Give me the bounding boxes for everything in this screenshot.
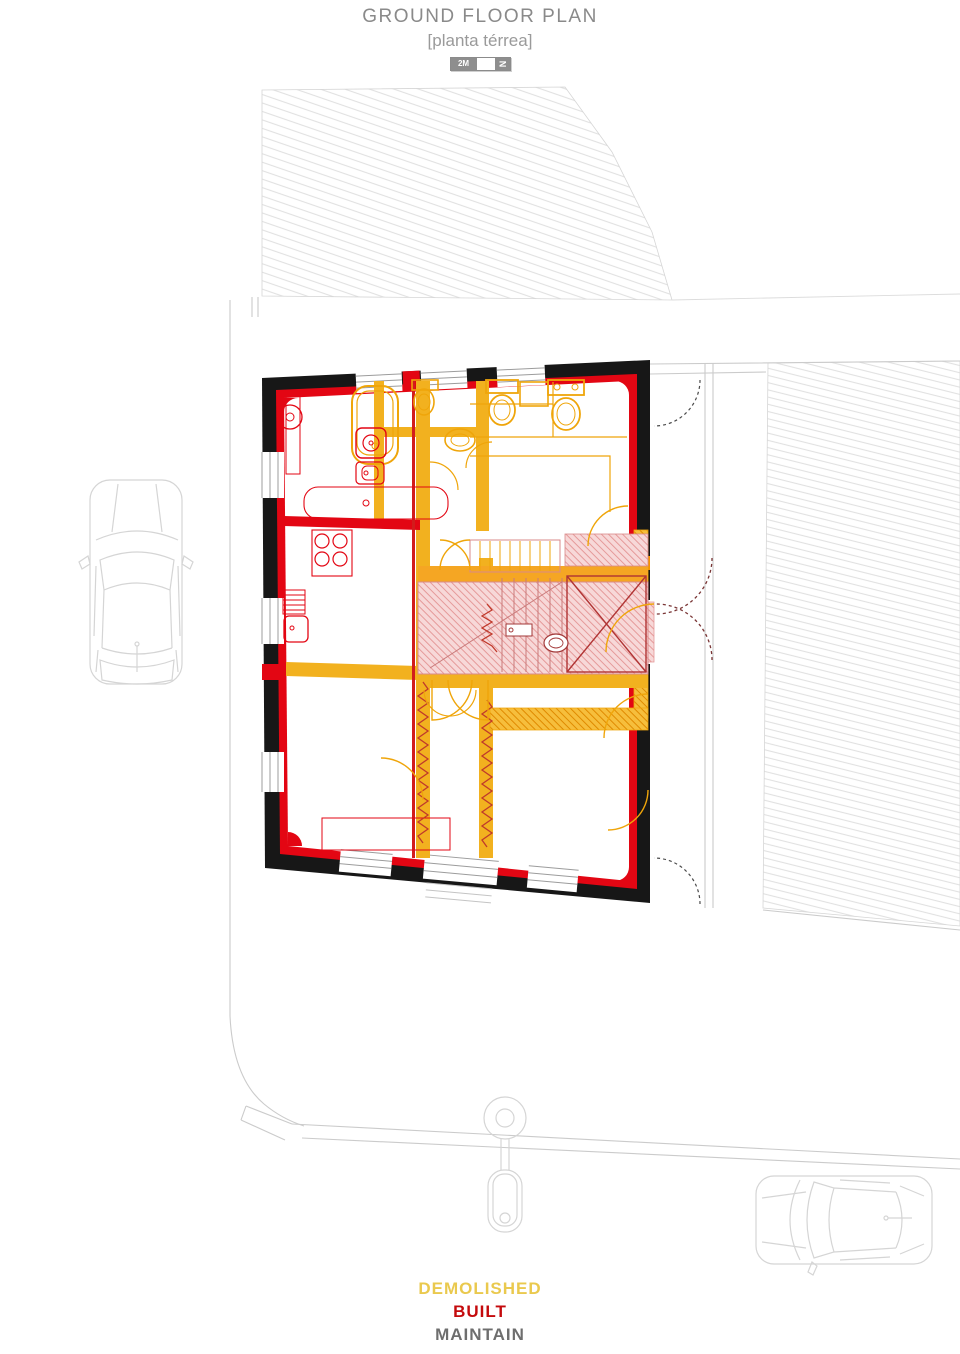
window-left-3 xyxy=(256,752,284,792)
car-parked-bottom-right xyxy=(756,1176,932,1275)
exterior-door-swings xyxy=(654,380,712,904)
window-top-3 xyxy=(497,363,546,387)
site-line-top xyxy=(672,294,960,300)
architectural-sheet: GROUND FLOOR PLAN [planta térrea] 2M N xyxy=(0,0,960,1354)
floor-plan-drawing xyxy=(0,0,960,1354)
legend-item-demolished: DEMOLISHED xyxy=(0,1277,960,1300)
street-post xyxy=(484,1097,526,1232)
car-parked-left xyxy=(79,480,193,684)
neighbor-roof-hatch-right xyxy=(763,361,960,926)
legend: DEMOLISHED BUILT MAINTAIN xyxy=(0,1277,960,1346)
window-left-2 xyxy=(256,598,284,644)
curb-notch xyxy=(241,1106,292,1140)
window-bottom-1 xyxy=(339,844,393,877)
legend-item-maintain: MAINTAIN xyxy=(0,1323,960,1346)
window-bottom-2 xyxy=(527,860,579,892)
building-plan xyxy=(256,360,712,904)
site-ticks-topleft xyxy=(252,297,258,317)
window-left-1 xyxy=(256,452,284,498)
neighbor-roof-hatch-top xyxy=(262,87,672,300)
wall-built-patch-left xyxy=(262,664,284,680)
legend-item-built: BUILT xyxy=(0,1300,960,1323)
